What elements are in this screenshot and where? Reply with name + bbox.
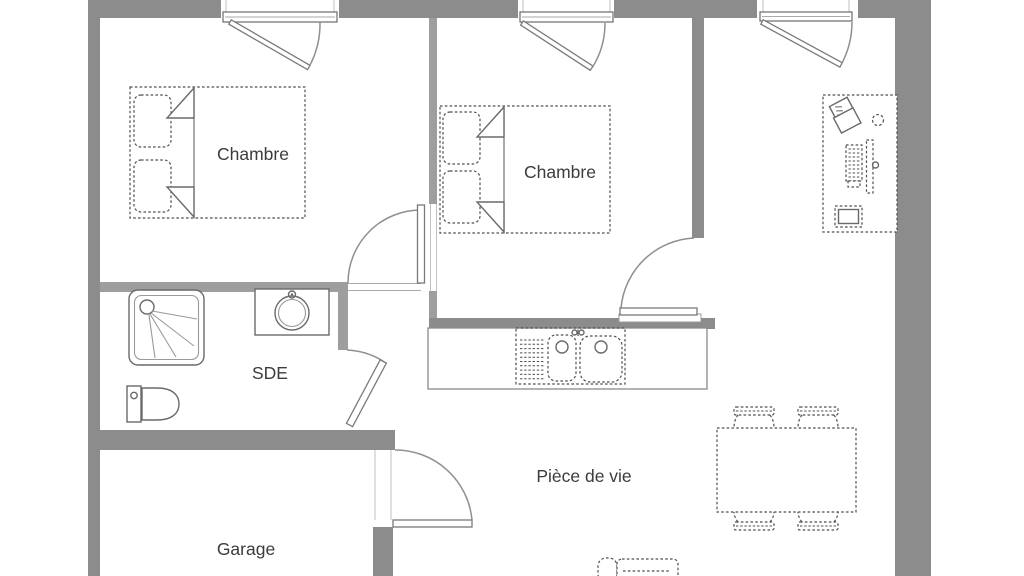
door-leaf (418, 205, 425, 283)
door-leaf (346, 360, 386, 427)
door-swing-arc (395, 450, 472, 520)
keyboard-icon (846, 145, 862, 187)
wall-garage-right (373, 527, 393, 576)
door-leaf (393, 520, 472, 527)
wall-bedroom2-office (692, 18, 704, 238)
wall-left (88, 0, 100, 576)
kitchen-counter-icon (428, 328, 707, 389)
pillow (443, 112, 480, 164)
window-swing-arc (841, 22, 852, 65)
window-leaf (521, 21, 593, 70)
wall-garage-top (88, 430, 395, 450)
window-swing-arc (309, 22, 320, 67)
room-label-living-room: Pièce de vie (536, 466, 631, 486)
door-swing-arc (347, 350, 383, 361)
wall-right (895, 0, 931, 576)
window-bedroom1 (221, 0, 339, 70)
wall-bedrooms-divider-lower (429, 291, 437, 321)
door-swing-arc (621, 238, 694, 308)
toilet-icon (127, 386, 179, 422)
window-bedroom2 (518, 0, 614, 70)
room-label-shower-room: SDE (252, 363, 288, 383)
shower-icon (129, 290, 204, 365)
sofa-icon (598, 558, 678, 576)
door-swing-arc (348, 210, 421, 283)
chair-icon-bottom-1 (734, 512, 774, 530)
door-garage (375, 450, 472, 527)
dining-table-icon (717, 428, 856, 512)
pillow (134, 95, 171, 147)
door-leaf (620, 308, 697, 315)
floor-plan-canvas: Chambre Chambre SDE Garage Pièce de vie (0, 0, 1024, 576)
window-leaf (761, 20, 842, 67)
door-bedroom1 (348, 204, 437, 291)
counter-outline (428, 328, 707, 389)
table-outline (717, 428, 856, 512)
desk-icon (823, 95, 897, 232)
pillow (443, 171, 480, 223)
door-shower-room (346, 350, 386, 427)
chair-icon-bottom-2 (798, 512, 838, 530)
door-bedroom2 (619, 238, 701, 322)
wall-bedrooms-divider-upper (429, 18, 437, 204)
window-leaf (229, 20, 310, 70)
notepad-icon (835, 206, 862, 227)
room-label-bedroom2: Chambre (524, 162, 596, 182)
chair-icon-top-2 (798, 407, 838, 428)
floor-plan: Chambre Chambre SDE Garage Pièce de vie (0, 0, 1024, 576)
window-swing-arc (592, 23, 605, 68)
chair-icon-top-1 (734, 407, 774, 428)
window-office (757, 0, 858, 67)
room-label-bedroom1: Chambre (217, 144, 289, 164)
washbasin-icon (255, 289, 329, 335)
wall-sde-right (338, 292, 348, 350)
pillow (134, 160, 171, 212)
room-label-garage: Garage (217, 539, 275, 559)
